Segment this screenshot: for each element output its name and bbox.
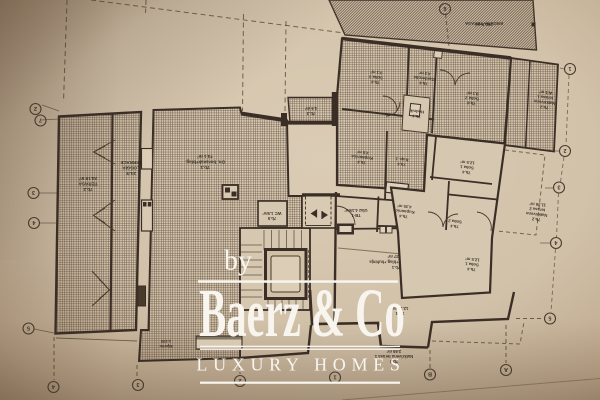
svg-text:5: 5 [548, 315, 551, 321]
svg-text:7b.1: 7b.1 [391, 265, 400, 270]
svg-text:3: 3 [136, 381, 139, 387]
svg-text:3: 3 [557, 184, 560, 190]
svg-text:LUXURY HOMES: LUXURY HOMES [196, 355, 405, 375]
svg-text:2: 2 [34, 105, 37, 111]
svg-text:A: A [504, 366, 508, 372]
svg-text:24./8: 24./8 [126, 171, 136, 176]
svg-text:7: 7 [39, 117, 42, 123]
svg-text:WC 1.5m²: WC 1.5m² [262, 211, 282, 216]
svg-text:7b.1: 7b.1 [200, 165, 210, 170]
svg-text:2: 2 [563, 147, 566, 153]
svg-text:LOGGIA: LOGGIA [122, 166, 140, 171]
svg-text:1: 1 [568, 65, 571, 71]
svg-text:Baerz & Co: Baerz & Co [199, 276, 405, 352]
svg-text:Dn. boravak+blag.: Dn. boravak+blag. [185, 160, 225, 165]
svg-text:260.5 m²: 260.5 m² [475, 22, 493, 27]
svg-text:TERRACE: TERRACE [120, 160, 141, 165]
svg-text:6: 6 [443, 5, 446, 11]
svg-text:74.1 m²: 74.1 m² [197, 154, 213, 159]
svg-text:TERASA: TERASA [78, 182, 98, 187]
svg-text:1.5 m²: 1.5 m² [304, 106, 317, 111]
svg-text:B: B [428, 371, 432, 377]
svg-text:5: 5 [27, 325, 30, 331]
svg-text:3: 3 [32, 189, 35, 195]
svg-text:24.18 m²: 24.18 m² [78, 176, 97, 181]
svg-text:Ulaz 4.15m²: Ulaz 4.15m² [344, 208, 368, 213]
svg-text:7b.2: 7b.2 [83, 187, 93, 192]
svg-text:1:100: 1:100 [160, 339, 171, 344]
svg-text:by: by [224, 246, 252, 277]
